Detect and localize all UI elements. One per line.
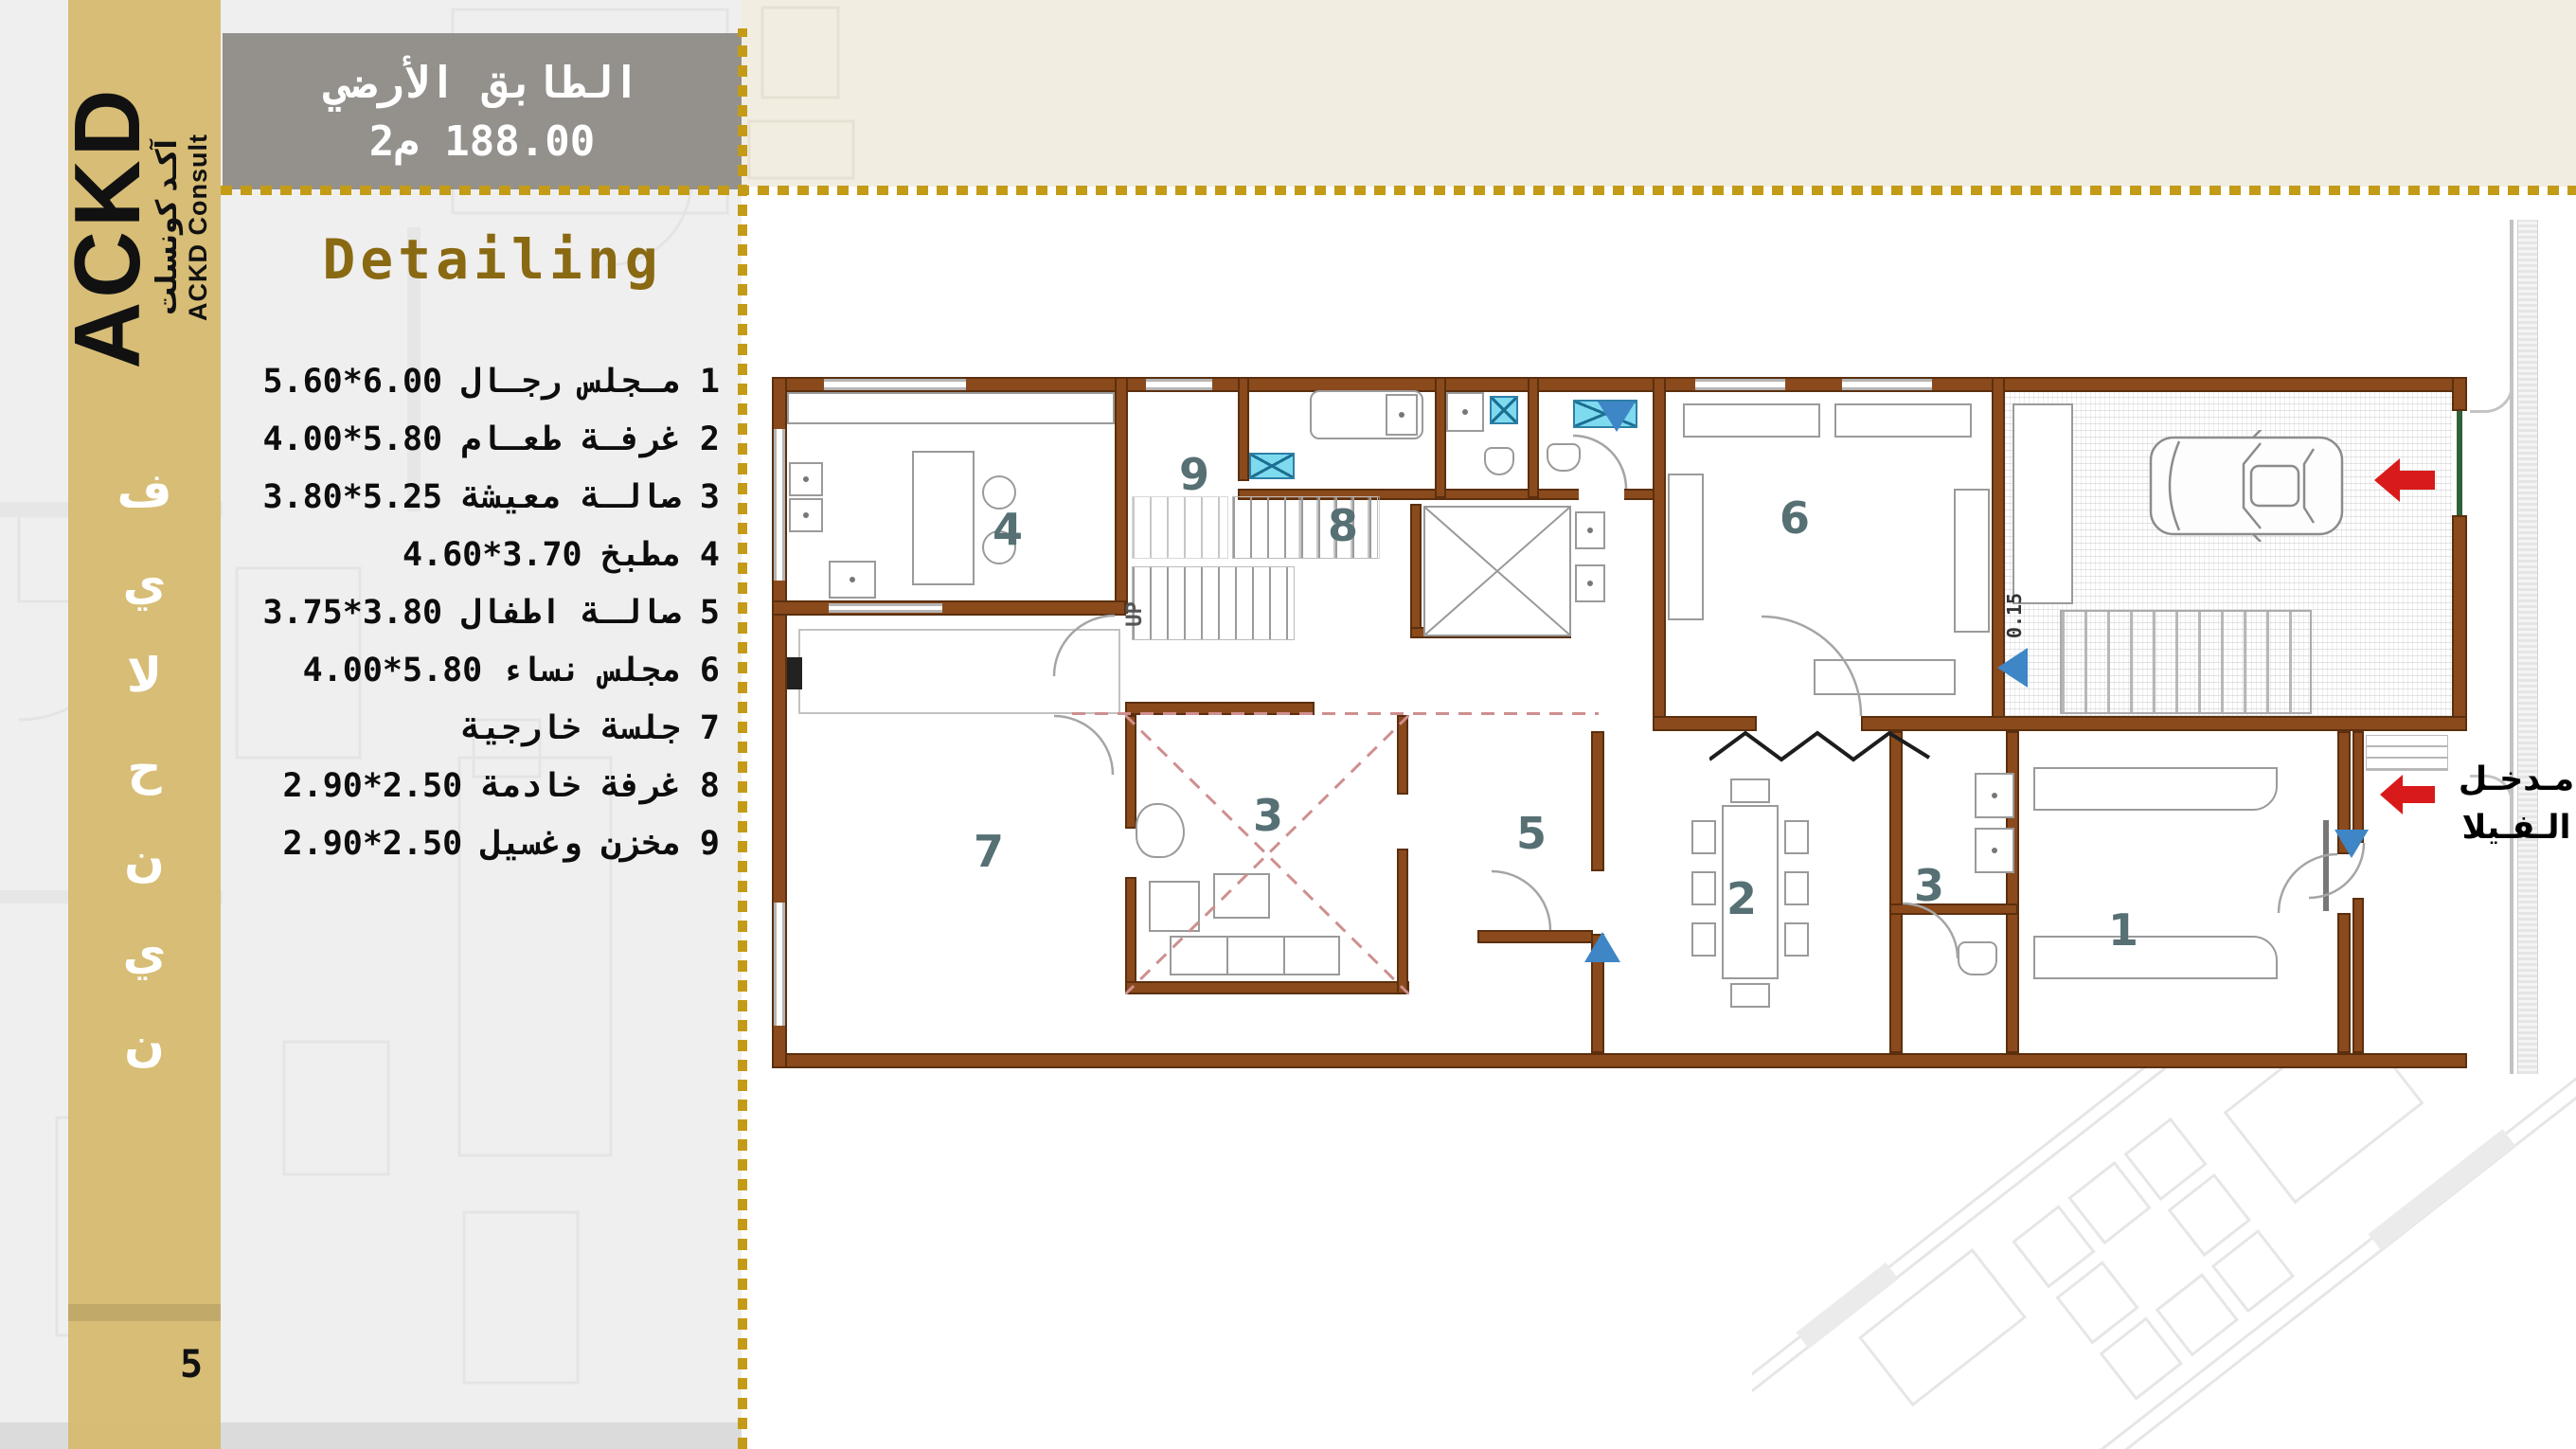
legend-room-dims: 5.60*6.00 — [262, 363, 442, 401]
faint-door-outline-icon — [742, 0, 1026, 187]
villa-entry-arrow-icon — [2380, 775, 2435, 814]
room-label-3b: 3 — [1914, 860, 1944, 911]
floor-plan: UP — [772, 377, 2467, 1068]
room-label-3: 3 — [1253, 790, 1283, 841]
legend-room-name: مطبخ — [601, 536, 681, 574]
entrance-caption-line2: الـفـيلا — [2457, 804, 2576, 852]
legend-room-dims: 4.00*5.80 — [262, 420, 442, 458]
street-curb-line — [2510, 220, 2513, 1074]
floor-title-box: الطابق الأرضي 188.00 م2 — [223, 33, 742, 189]
room-label-8: 8 — [1328, 500, 1358, 551]
room-label-7: 7 — [974, 826, 1004, 877]
villa-name-vertical: فيلاحنين — [68, 445, 221, 1092]
gold-dotted-rule-vertical — [738, 28, 747, 1449]
room-label-1: 1 — [2108, 904, 2138, 956]
room-label-6: 6 — [1780, 492, 1810, 544]
villa-name-letter: ي — [68, 907, 221, 1000]
legend-room-number: 1 — [700, 363, 720, 401]
legend-row: 8غرفة خادمة2.90*2.50 — [213, 757, 720, 814]
legend-room-name: مـجلس رجـال — [461, 363, 681, 401]
legend-room-dims: 4.00*5.80 — [303, 652, 483, 689]
sidebar: ACKD آكـد كونسلت ACKD Consult فيلاحنين 5 — [68, 0, 221, 1449]
door-marker-triangle-icon — [1584, 932, 1620, 962]
legend-room-dims: 3.75*3.80 — [262, 594, 442, 632]
villa-name-letter: ن — [68, 999, 221, 1092]
door-arcs-icon — [772, 377, 2467, 1068]
street-curb-band — [2517, 220, 2538, 1074]
legend-room-number: 3 — [700, 478, 720, 516]
slide: ACKD آكـد كونسلت ACKD Consult فيلاحنين 5… — [0, 0, 2576, 1449]
villa-name-letter: لا — [68, 630, 221, 723]
room-label-4: 4 — [993, 504, 1023, 555]
gold-dotted-rule-horizontal — [221, 186, 2576, 195]
sidebar-shade — [68, 1304, 221, 1321]
legend-title: Detailing — [265, 227, 720, 292]
legend-room-number: 4 — [700, 536, 720, 574]
floor-title: الطابق الأرضي — [325, 57, 639, 108]
door-marker-triangle-icon — [1598, 402, 1636, 432]
legend-row: 4مطبخ4.60*3.70 — [213, 526, 720, 583]
door-marker-triangle-icon — [2334, 830, 2369, 858]
ackd-logo: ACKD آكـد كونسلت ACKD Consult — [68, 47, 220, 407]
legend-row: 7جلسة خارجية — [213, 699, 720, 757]
legend-row: 6مجلس نساء4.00*5.80 — [213, 641, 720, 699]
floor-area: 188.00 م2 — [369, 117, 595, 166]
level-marker-triangle-icon — [1997, 648, 2028, 688]
legend-room-name: مجلس نساء — [501, 652, 681, 689]
legend-room-number: 2 — [700, 420, 720, 458]
legend-room-dims: 2.90*2.50 — [283, 767, 463, 805]
faint-diagonal-plan-icon — [1752, 1004, 2576, 1449]
legend-row: 1مـجلس رجـال5.60*6.00 — [213, 352, 720, 410]
villa-name-letter: ن — [68, 814, 221, 907]
legend-room-name: غرفـة طعـام — [461, 420, 681, 458]
room-label-5: 5 — [1516, 808, 1547, 859]
legend-list: 1مـجلس رجـال5.60*6.00 2غرفـة طعـام4.00*5… — [213, 352, 720, 872]
legend-room-name: جلسة خارجية — [461, 709, 681, 747]
villa-name-letter: ي — [68, 538, 221, 631]
legend-room-dims: 3.80*5.25 — [262, 478, 442, 516]
legend-row: 3صالـة معيشة3.80*5.25 — [213, 468, 720, 526]
car-entry-arrow-icon — [2374, 458, 2435, 502]
level-value: 0.15 — [2003, 593, 2026, 638]
legend-row: 9مخزن وغسيل2.90*2.50 — [213, 814, 720, 872]
legend-room-number: 5 — [700, 594, 720, 632]
legend-room-name: صالـة اطفال — [461, 594, 681, 632]
logo-subtext-arabic: آكـد كونسلت — [151, 139, 184, 315]
legend-row: 2غرفـة طعـام4.00*5.80 — [213, 410, 720, 468]
logo-text: ACKD — [68, 85, 147, 368]
entrance-caption-line1: مـدخـل — [2457, 756, 2576, 804]
room-label-9: 9 — [1179, 449, 1209, 500]
top-cream-band — [742, 0, 2576, 187]
legend-room-number: 6 — [700, 652, 720, 689]
legend-row: 5صالـة اطفال3.75*3.80 — [213, 583, 720, 641]
legend-room-number: 7 — [700, 709, 720, 747]
villa-name-letter: ح — [68, 723, 221, 815]
legend-room-dims: 2.90*2.50 — [283, 825, 463, 863]
legend-room-name: غرفة خادمة — [481, 767, 681, 805]
page-number: 5 — [180, 1343, 203, 1386]
curb-corner-icon — [2470, 369, 2513, 413]
legend-room-number: 9 — [700, 825, 720, 863]
legend-room-dims: 4.60*3.70 — [402, 536, 582, 574]
legend-room-name: مخزن وغسيل — [481, 825, 681, 863]
legend-room-number: 8 — [700, 767, 720, 805]
villa-name-letter: ف — [68, 445, 221, 538]
legend-room-name: صالـة معيشة — [461, 478, 681, 516]
entrance-caption: مـدخـل الـفـيلا — [2457, 756, 2576, 852]
room-label-2: 2 — [1726, 873, 1757, 924]
logo-subtext-english: ACKD Consult — [184, 134, 213, 321]
